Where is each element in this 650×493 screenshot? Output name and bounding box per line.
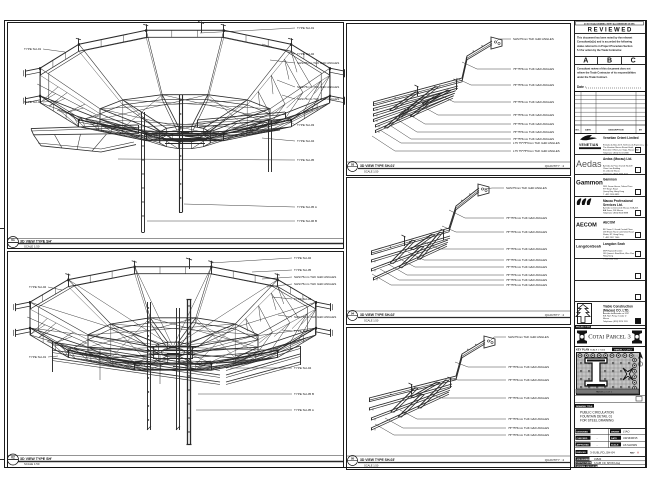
svg-text:APPROVED: APPROVED [577,444,590,447]
svg-text:SHS/75mm THK G&D ANGLES: SHS/75mm THK G&D ANGLES [506,186,547,190]
svg-text:AECOM: AECOM [603,221,615,225]
svg-text:DESIGNED: DESIGNED [577,432,589,434]
svg-text:A: A [637,451,639,455]
svg-text:3D VIEW TYPE SH-03': 3D VIEW TYPE SH-03' [360,458,395,462]
svg-text:DATE: DATE [611,437,617,440]
svg-text:3D VIEW TYPE SH': 3D VIEW TYPE SH' [20,239,52,243]
svg-text:138 Shatin Rural Committee Roa: 138 Shatin Rural Committee Road [603,231,633,234]
svg-text:Avenida da Amizade no.1287: Avenida da Amizade no.1287 [603,312,630,315]
svg-text:AS SHOWN: AS SHOWN [623,443,637,447]
svg-text:75*75*6mm THK G&D ANGLES: 75*75*6mm THK G&D ANGLES [508,417,549,421]
svg-text:JOB NUMBER: JOB NUMBER [577,459,591,461]
svg-text:75*75*6mm THK G&D ANGLES: 75*75*6mm THK G&D ANGLES [513,67,554,71]
svg-text:A: A [583,58,588,65]
svg-text:75*75*6mm THK G&D ANGLES: 75*75*6mm THK G&D ANGLES [506,283,547,287]
svg-text:75*75*6mm THK G&D ANGLES: 75*75*6mm THK G&D ANGLES [506,258,547,262]
svg-text:DRAWING TITLE: DRAWING TITLE [576,405,593,408]
svg-text:REV: REV [630,453,635,455]
svg-text:PARCEL 1, LOT 2: PARCEL 1, LOT 2 [614,348,632,351]
svg-text:75*75*6mm THK G&D ANGLES: 75*75*6mm THK G&D ANGLES [506,230,547,234]
svg-text:38/F Hopewell Centre: 38/F Hopewell Centre [603,250,623,253]
svg-text:5.4 for action by the Trade Co: 5.4 for action by the Trade Contractor. [577,49,622,52]
svg-text:Telephone: (853) 2870 1111: Telephone: (853) 2870 1111 [603,321,628,323]
svg-text:relieve the Trade Contractor o: relieve the Trade Contractor of its resp… [577,72,637,75]
svg-text:SCALE 1:7,500: SCALE 1:7,500 [590,349,606,352]
svg-text:TYPE SH-05: TYPE SH-05 [297,158,315,162]
svg-text:Avenida da Praia Grande No.409: Avenida da Praia Grande No.409 [603,165,633,168]
svg-text:FOR STEEL DRAWING: FOR STEEL DRAWING [580,418,614,422]
svg-text:75*75*6mm THK G&D ANGLES: 75*75*6mm THK G&D ANGLES [513,100,554,104]
svg-text:R E V I E W E D: R E V I E W E D [588,28,632,34]
svg-text:Venetian Orient Limited: Venetian Orient Limited [603,136,639,140]
svg-text:SCALE 1:50: SCALE 1:50 [24,462,40,466]
svg-text:TYPE SH-04: TYPE SH-04 [297,139,315,143]
svg-text:Consultant(s)(s) and is accord: Consultant(s)(s) and is accorded the fol… [577,41,632,44]
svg-text:C: C [631,58,636,65]
svg-text:-: - [597,444,598,447]
svg-text:LYAO: LYAO [623,430,630,434]
svg-text:21 andar A, Macau: 21 andar A, Macau [603,170,620,173]
svg-text:Services Ltd.: Services Ltd. [603,203,623,207]
svg-text:(Macau) CO. LTD.: (Macau) CO. LTD. [603,309,629,313]
svg-text:75*75*6mm THK G&D ANGLES: 75*75*6mm THK G&D ANGLES [508,378,549,382]
svg-text:Aedas (Macau) Ltd.: Aedas (Macau) Ltd. [603,157,632,161]
svg-text:AIA Tower, 20F Macau: AIA Tower, 20F Macau [603,209,623,212]
svg-text:3-SUB_FD_SH-04: 3-SUB_FD_SH-04 [590,451,615,455]
svg-text:Langdon Seah: Langdon Seah [603,242,625,246]
svg-text:L75 75*75*6mm THK G&D ANGLES: L75 75*75*6mm THK G&D ANGLES [513,141,560,145]
svg-text:75*75*6mm THK G&D ANGLES: 75*75*6mm THK G&D ANGLES [508,426,549,430]
svg-text:This document has been noted b: This document has been noted by the rele… [577,37,632,40]
svg-text:SHS/75mm THK G&D ANGLES: SHS/75mm THK G&D ANGLES [294,275,336,279]
svg-text:Gammon: Gammon [576,180,603,187]
svg-text:TYPE SH-05 B: TYPE SH-05 B [294,392,314,396]
svg-text:DO NOT SCALE DRAWING. VERIFY A: DO NOT SCALE DRAWING. VERIFY ALL DIMENSI… [584,22,635,25]
svg-text:75*75*6mm THK G&D ANGLES: 75*75*6mm THK G&D ANGLES [513,83,554,87]
svg-text:TYPE SH-05: TYPE SH-05 [294,268,312,272]
svg-text:75*75*6mm THK G&D ANGLES: 75*75*6mm THK G&D ANGLES [506,265,547,269]
svg-text:TYPE SH-06 B: TYPE SH-06 B [297,219,317,223]
svg-text:3D VIEW TYPE SH-01': 3D VIEW TYPE SH-01' [360,164,395,168]
svg-text:L75 75*75*6mm THK G&D ANGLES: L75 75*75*6mm THK G&D ANGLES [513,149,560,153]
svg-text:Aedas: Aedas [576,159,602,169]
svg-text:3D VIEW TYPE SH-02': 3D VIEW TYPE SH-02' [360,313,395,317]
svg-text:-: - [597,437,598,440]
svg-text:01: 01 [11,238,15,242]
svg-text:SCALE 1:50: SCALE 1:50 [364,464,379,468]
svg-text:AECOM: AECOM [576,223,597,229]
svg-text:TYPE SH-04: TYPE SH-04 [294,366,312,370]
svg-text:TYPE SH-05 A: TYPE SH-05 A [297,205,317,209]
svg-text:NO.: NO. [576,130,580,132]
svg-text:DESCRIPTION: DESCRIPTION [609,130,624,132]
svg-text:SHS/75mm THK G&D ANGLES: SHS/75mm THK G&D ANGLES [294,315,336,319]
svg-text:SHS/75mm THK G&D ANGLES: SHS/75mm THK G&D ANGLES [513,37,554,41]
svg-text:BY: BY [639,130,643,132]
svg-text:Telephone: (853) 2833 1022: Telephone: (853) 2833 1022 [603,173,629,175]
svg-text:DATE: DATE [585,129,591,132]
svg-text:TYPE SH-03: TYPE SH-03 [294,329,312,333]
svg-text:8/F Tower 2, Grand Central Pla: 8/F Tower 2, Grand Central Plaza [603,228,634,231]
svg-text:75*75*6mm THK G&D ANGLES: 75*75*6mm THK G&D ANGLES [513,113,554,117]
svg-text:DRAWN: DRAWN [611,431,620,434]
svg-text:TYPE SH-05 A: TYPE SH-05 A [294,408,314,412]
svg-text:SHS/75mm THK G&D ANGLES: SHS/75mm THK G&D ANGLES [297,97,339,101]
svg-text:SCALE: SCALE [611,444,619,447]
svg-text:Gammon: Gammon [603,178,617,182]
svg-text:TYPE SH-02: TYPE SH-02 [29,285,47,289]
svg-text:75*75*6mm THK G&D ANGLES: 75*75*6mm THK G&D ANGLES [506,247,547,251]
svg-text:TYPE SH-01: TYPE SH-01 [24,47,42,51]
svg-text:03: 03 [351,163,355,167]
svg-text:SHS/75mm THK G&D ANGLES: SHS/75mm THK G&D ANGLES [508,335,549,339]
svg-text:Avenida Comercial de Macau 251: Avenida Comercial de Macau 251A-301 [603,207,639,210]
svg-text:75*75*6mm THK G&D ANGLES: 75*75*6mm THK G&D ANGLES [506,273,547,277]
svg-text:Telephone: (853) 81 18 2888: Telephone: (853) 81 18 2888 [603,152,629,154]
svg-text:B: B [607,58,612,65]
svg-text:TYPE SH-01: TYPE SH-01 [297,26,315,30]
svg-text:LangdonSeah: LangdonSeah [576,245,602,249]
svg-text:04: 04 [351,312,355,316]
svg-text:QUANTITY : 4: QUANTITY : 4 [545,458,565,462]
svg-text:183 Queen's Road East, Wan Cha: 183 Queen's Road East, Wan Chai [603,252,635,255]
svg-text:VENETIAN: VENETIAN [579,143,599,147]
svg-text:TYPE SH-02: TYPE SH-02 [294,297,312,301]
svg-text:under the Trade Contract.: under the Trade Contract. [577,76,608,79]
svg-text:Estrada da Baia de N. Senhora: Estrada da Baia de N. Senhora da Esperan… [603,144,647,147]
svg-text:75*75*6mm THK G&D ANGLES: 75*75*6mm THK G&D ANGLES [513,130,554,134]
svg-text:TYPE SH-02: TYPE SH-02 [294,256,312,260]
svg-text:31520: 31520 [594,457,602,461]
svg-text:T +852 2317 7000: T +852 2317 7000 [603,237,620,239]
svg-text:Shatin, NT, Hong Kong: Shatin, NT, Hong Kong [603,233,623,236]
svg-text:Telephone: (853) 8506 8888: Telephone: (853) 8506 8888 [603,213,629,215]
svg-text:05: 05 [351,457,355,461]
svg-text:Consultant review of this docu: Consultant review of this document does … [577,68,631,71]
svg-text:SCALE 1:50: SCALE 1:50 [24,245,40,249]
svg-text:75*75*6mm THK G&D ANGLES: 75*75*6mm THK G&D ANGLES [508,433,549,437]
svg-text:The Venetian Macao Resort Hote: The Venetian Macao Resort Hotel, [603,146,634,149]
svg-text:SHS/75mm THK G&D ANGLES: SHS/75mm THK G&D ANGLES [297,85,339,89]
svg-text:Date :: Date : [577,85,586,89]
svg-text:75*75*6mm THK G&D ANGLES: 75*75*6mm THK G&D ANGLES [506,216,547,220]
svg-text:TYPE SH-02: TYPE SH-02 [24,100,42,104]
svg-text:QUANTITY : 4: QUANTITY : 4 [545,164,565,168]
svg-text:02: 02 [11,456,15,460]
svg-text:SHS/75mm THK G&D ANGLES: SHS/75mm THK G&D ANGLES [297,61,339,65]
svg-text:CHECKED: CHECKED [577,438,588,440]
svg-text:75*75*6mm THK G&D ANGLES: 75*75*6mm THK G&D ANGLES [513,122,554,126]
svg-text:UW16/08/15: UW16/08/15 [623,436,638,440]
svg-text:status referred to in Projec: status referred to in Project Procedure … [577,45,633,48]
svg-text:TYPE SH-02: TYPE SH-02 [297,52,315,56]
svg-text:SCALE 1:50: SCALE 1:50 [364,170,379,174]
svg-text:75*75*6mm THK G&D ANGLES: 75*75*6mm THK G&D ANGLES [508,365,549,369]
svg-text:Executive Offices-L2, Taipa, M: Executive Offices-L2, Taipa, Macao SAR [603,149,639,152]
svg-text:KEY PLAN: KEY PLAN [576,348,589,352]
svg-text:SCALE 1:50: SCALE 1:50 [364,319,379,323]
svg-text:INTERNAL USE FILE NAME: INTERNAL USE FILE NAME [577,465,601,468]
svg-text:QUANTITY : 4: QUANTITY : 4 [545,313,565,317]
svg-text:TYPE SH-01: TYPE SH-01 [29,355,47,359]
svg-text:TYPE SH-03: TYPE SH-03 [297,123,315,127]
svg-text:PARCEL 2, LOT 1: PARCEL 2, LOT 1 [596,390,613,393]
svg-text:75*75*6mm THK G&D ANGLES: 75*75*6mm THK G&D ANGLES [506,278,547,282]
svg-text:T +852 2516 8823: T +852 2516 8823 [603,194,620,196]
svg-text:75*75*6mm THK G&D ANGLES: 75*75*6mm THK G&D ANGLES [508,396,549,400]
svg-text:DWG NO: DWG NO [577,452,587,454]
svg-text:3D VIEW TYPE SH': 3D VIEW TYPE SH' [20,457,52,461]
svg-text:T 852 2830 3500: T 852 2830 3500 [603,258,619,260]
svg-text:SHS/75mm THK G&D ANGLES: SHS/75mm THK G&D ANGLES [294,282,336,286]
svg-text:COTAI PARCEL 3: COTAI PARCEL 3 [588,334,630,341]
